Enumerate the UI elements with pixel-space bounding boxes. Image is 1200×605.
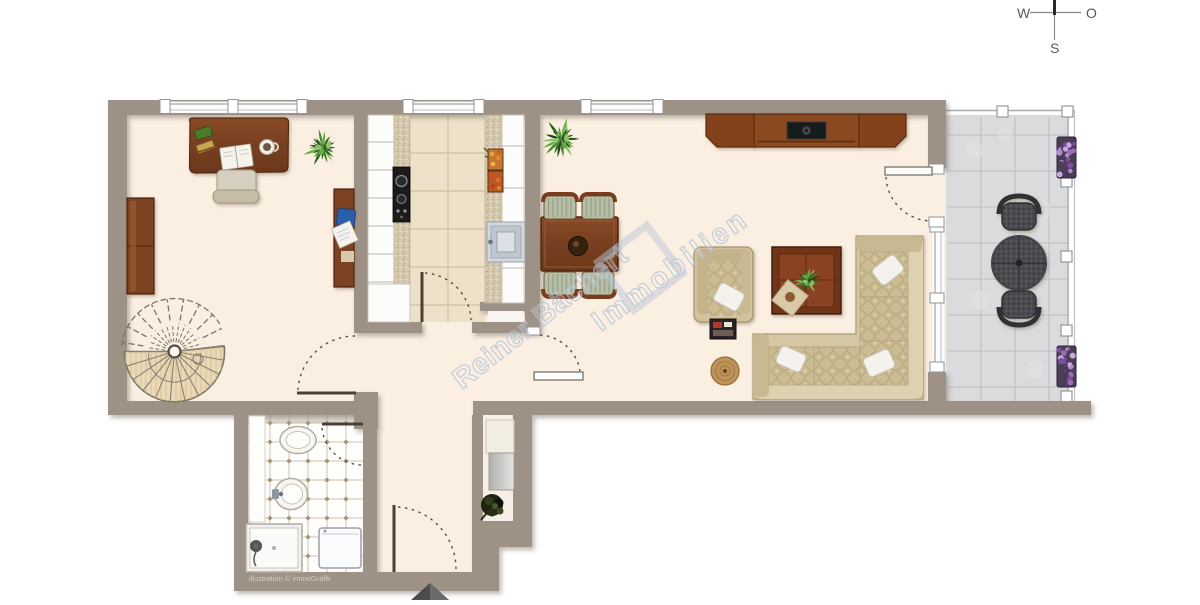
svg-text:O: O — [1086, 5, 1097, 21]
svg-text:W: W — [1017, 5, 1031, 21]
svg-text:S: S — [1050, 40, 1059, 56]
svg-text:illustration © immoGrafik: illustration © immoGrafik — [249, 574, 331, 583]
